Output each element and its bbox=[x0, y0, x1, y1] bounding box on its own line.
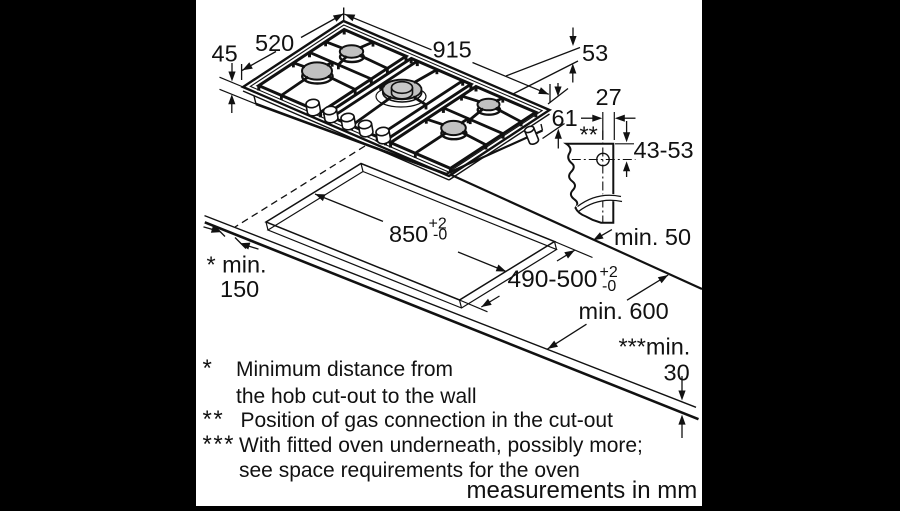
svg-text:61: 61 bbox=[552, 105, 578, 131]
svg-text:**: ** bbox=[580, 122, 598, 148]
svg-text:490-500: 490-500 bbox=[508, 266, 598, 293]
svg-text:Minimum distance from: Minimum distance from bbox=[236, 358, 453, 381]
svg-text:150: 150 bbox=[220, 276, 259, 302]
svg-text:45: 45 bbox=[212, 41, 238, 67]
svg-text:-0: -0 bbox=[602, 278, 616, 295]
svg-text:***: *** bbox=[203, 431, 236, 458]
svg-text:Position of gas connection in: Position of gas connection in the cut-ou… bbox=[241, 409, 614, 432]
svg-text:53: 53 bbox=[582, 40, 608, 66]
svg-text:30: 30 bbox=[664, 360, 690, 386]
svg-text:*: * bbox=[203, 355, 212, 382]
svg-text:915: 915 bbox=[433, 37, 472, 63]
svg-text:27: 27 bbox=[596, 84, 622, 110]
svg-text:***min.: ***min. bbox=[619, 334, 691, 360]
svg-text:520: 520 bbox=[255, 30, 294, 56]
svg-text:measurements in mm: measurements in mm bbox=[467, 477, 698, 504]
svg-text:* min.: * min. bbox=[207, 252, 267, 278]
svg-text:the hob cut-out to the wall: the hob cut-out to the wall bbox=[236, 385, 477, 408]
svg-text:**: ** bbox=[203, 406, 225, 433]
svg-text:With fitted oven underneath, p: With fitted oven underneath, possibly mo… bbox=[239, 434, 643, 457]
svg-text:min. 50: min. 50 bbox=[614, 224, 691, 250]
svg-text:850: 850 bbox=[389, 221, 428, 247]
svg-text:min. 600: min. 600 bbox=[579, 298, 669, 324]
svg-text:-0: -0 bbox=[433, 227, 447, 244]
svg-text:43-53: 43-53 bbox=[634, 137, 694, 163]
